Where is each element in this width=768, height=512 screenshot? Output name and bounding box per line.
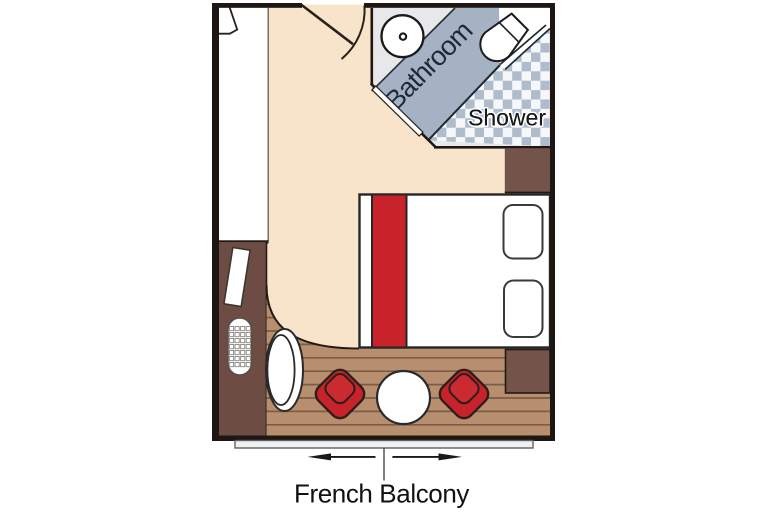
svg-text:French Balcony: French Balcony [294,479,469,509]
svg-text:Shower: Shower [468,105,546,131]
